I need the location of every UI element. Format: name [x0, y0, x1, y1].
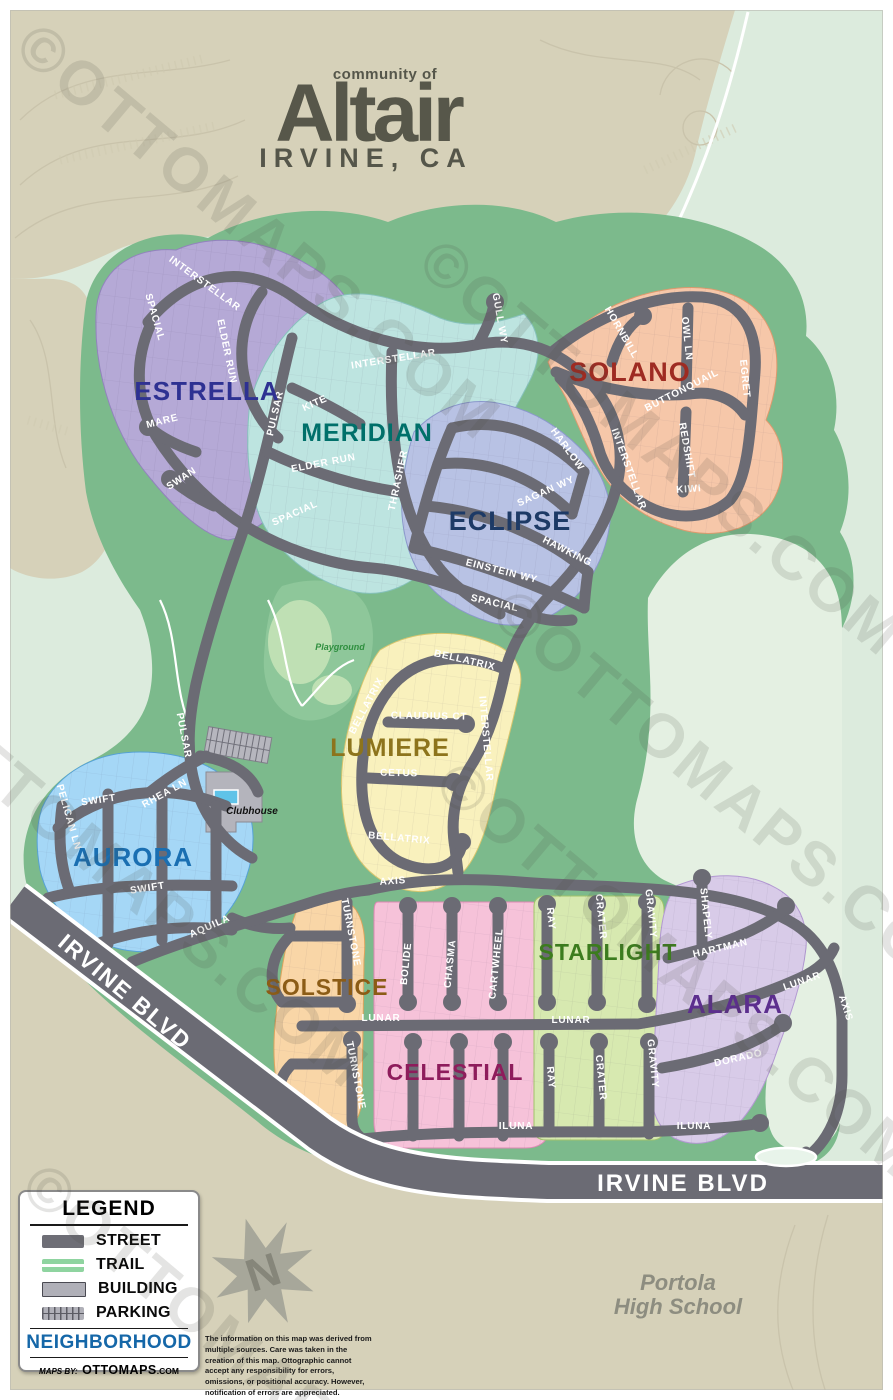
- legend-label-trail: TRAIL: [96, 1256, 145, 1274]
- legend-credit: MAPS BY: OTTOMAPS.COM: [20, 1361, 198, 1379]
- map-page: INTERSTELLARSPACIALELDER RUNMAREPULSARSW…: [0, 0, 893, 1400]
- legend-row-parking: PARKING: [42, 1304, 198, 1322]
- street-swatch: [42, 1235, 84, 1248]
- street-label: RAY: [544, 907, 557, 931]
- legend-row-trail: TRAIL: [42, 1256, 198, 1274]
- clubhouse-label: Clubhouse: [226, 806, 278, 817]
- neighborhood-label: CELESTIAL: [387, 1059, 524, 1085]
- credit-brand: OTTOMAPS: [82, 1363, 157, 1377]
- street-label: ILUNA: [499, 1121, 534, 1132]
- street-label: LUNAR: [362, 1013, 401, 1024]
- disclaimer-text: The information on this map was derived …: [205, 1334, 375, 1399]
- trail-swatch: [42, 1259, 84, 1272]
- street-label: ILUNA: [677, 1121, 712, 1132]
- neighborhood-label: SOLANO: [569, 357, 691, 387]
- neighborhood-label: STARLIGHT: [539, 939, 678, 965]
- street-label: RAY: [544, 1066, 557, 1090]
- neighborhood-label: ESTRELLA: [134, 376, 279, 406]
- legend-label-building: BUILDING: [98, 1280, 178, 1298]
- neighborhood-label: MERIDIAN: [301, 419, 433, 447]
- pond: [756, 1148, 816, 1166]
- map-title: community of Altair IRVINE, CA: [259, 66, 473, 173]
- legend-title: LEGEND: [20, 1197, 198, 1221]
- street-label: LUNAR: [552, 1015, 591, 1026]
- neighborhood-label: ECLIPSE: [449, 506, 572, 536]
- legend-row-street: STREET: [42, 1232, 198, 1250]
- street-label: KIWI: [676, 483, 702, 496]
- neighborhood-label: SOLSTICE: [265, 974, 388, 1000]
- school-label-line2: High School: [614, 1294, 743, 1319]
- legend-panel: LEGEND STREET TRAIL BUILDING PARKING NEI…: [18, 1190, 200, 1372]
- legend-divider: [30, 1357, 188, 1358]
- parking-swatch: [42, 1307, 84, 1320]
- legend-row-building: BUILDING: [42, 1280, 198, 1298]
- legend-label-parking: PARKING: [96, 1304, 171, 1322]
- street-label: CETUS: [380, 768, 418, 780]
- legend-neighborhood-label: NEIGHBORHOOD: [20, 1332, 198, 1354]
- neighborhood-label: LUMIERE: [330, 734, 450, 762]
- title-city: IRVINE, CA: [259, 143, 473, 173]
- legend-divider: [30, 1224, 188, 1226]
- school-label-line1: Portola: [640, 1270, 716, 1295]
- legend-divider: [30, 1328, 188, 1329]
- legend-label-street: STREET: [96, 1232, 161, 1250]
- irvine-blvd-label-horizontal: IRVINE BLVD: [597, 1170, 769, 1197]
- neighborhood-label: AURORA: [73, 842, 193, 872]
- street-label: AXIS: [379, 875, 406, 888]
- credit-suffix: .COM: [157, 1366, 179, 1376]
- playground-label: Playground: [315, 642, 365, 652]
- street-label: CLAUDIUS CT: [391, 710, 468, 722]
- credit-prefix: MAPS BY:: [39, 1367, 78, 1376]
- building-swatch: [42, 1282, 86, 1297]
- neighborhood-label: ALARA: [687, 989, 783, 1019]
